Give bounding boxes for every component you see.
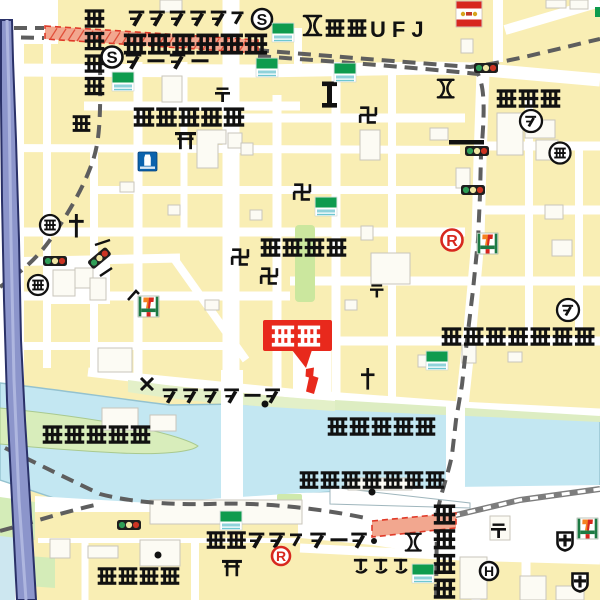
svg-text:R: R <box>276 548 286 564</box>
svg-text:UFJ: UFJ <box>370 17 430 42</box>
svg-text:R: R <box>446 233 458 250</box>
svg-text:S: S <box>257 12 268 29</box>
svg-text:H: H <box>484 563 494 579</box>
svg-text:S: S <box>106 48 117 67</box>
